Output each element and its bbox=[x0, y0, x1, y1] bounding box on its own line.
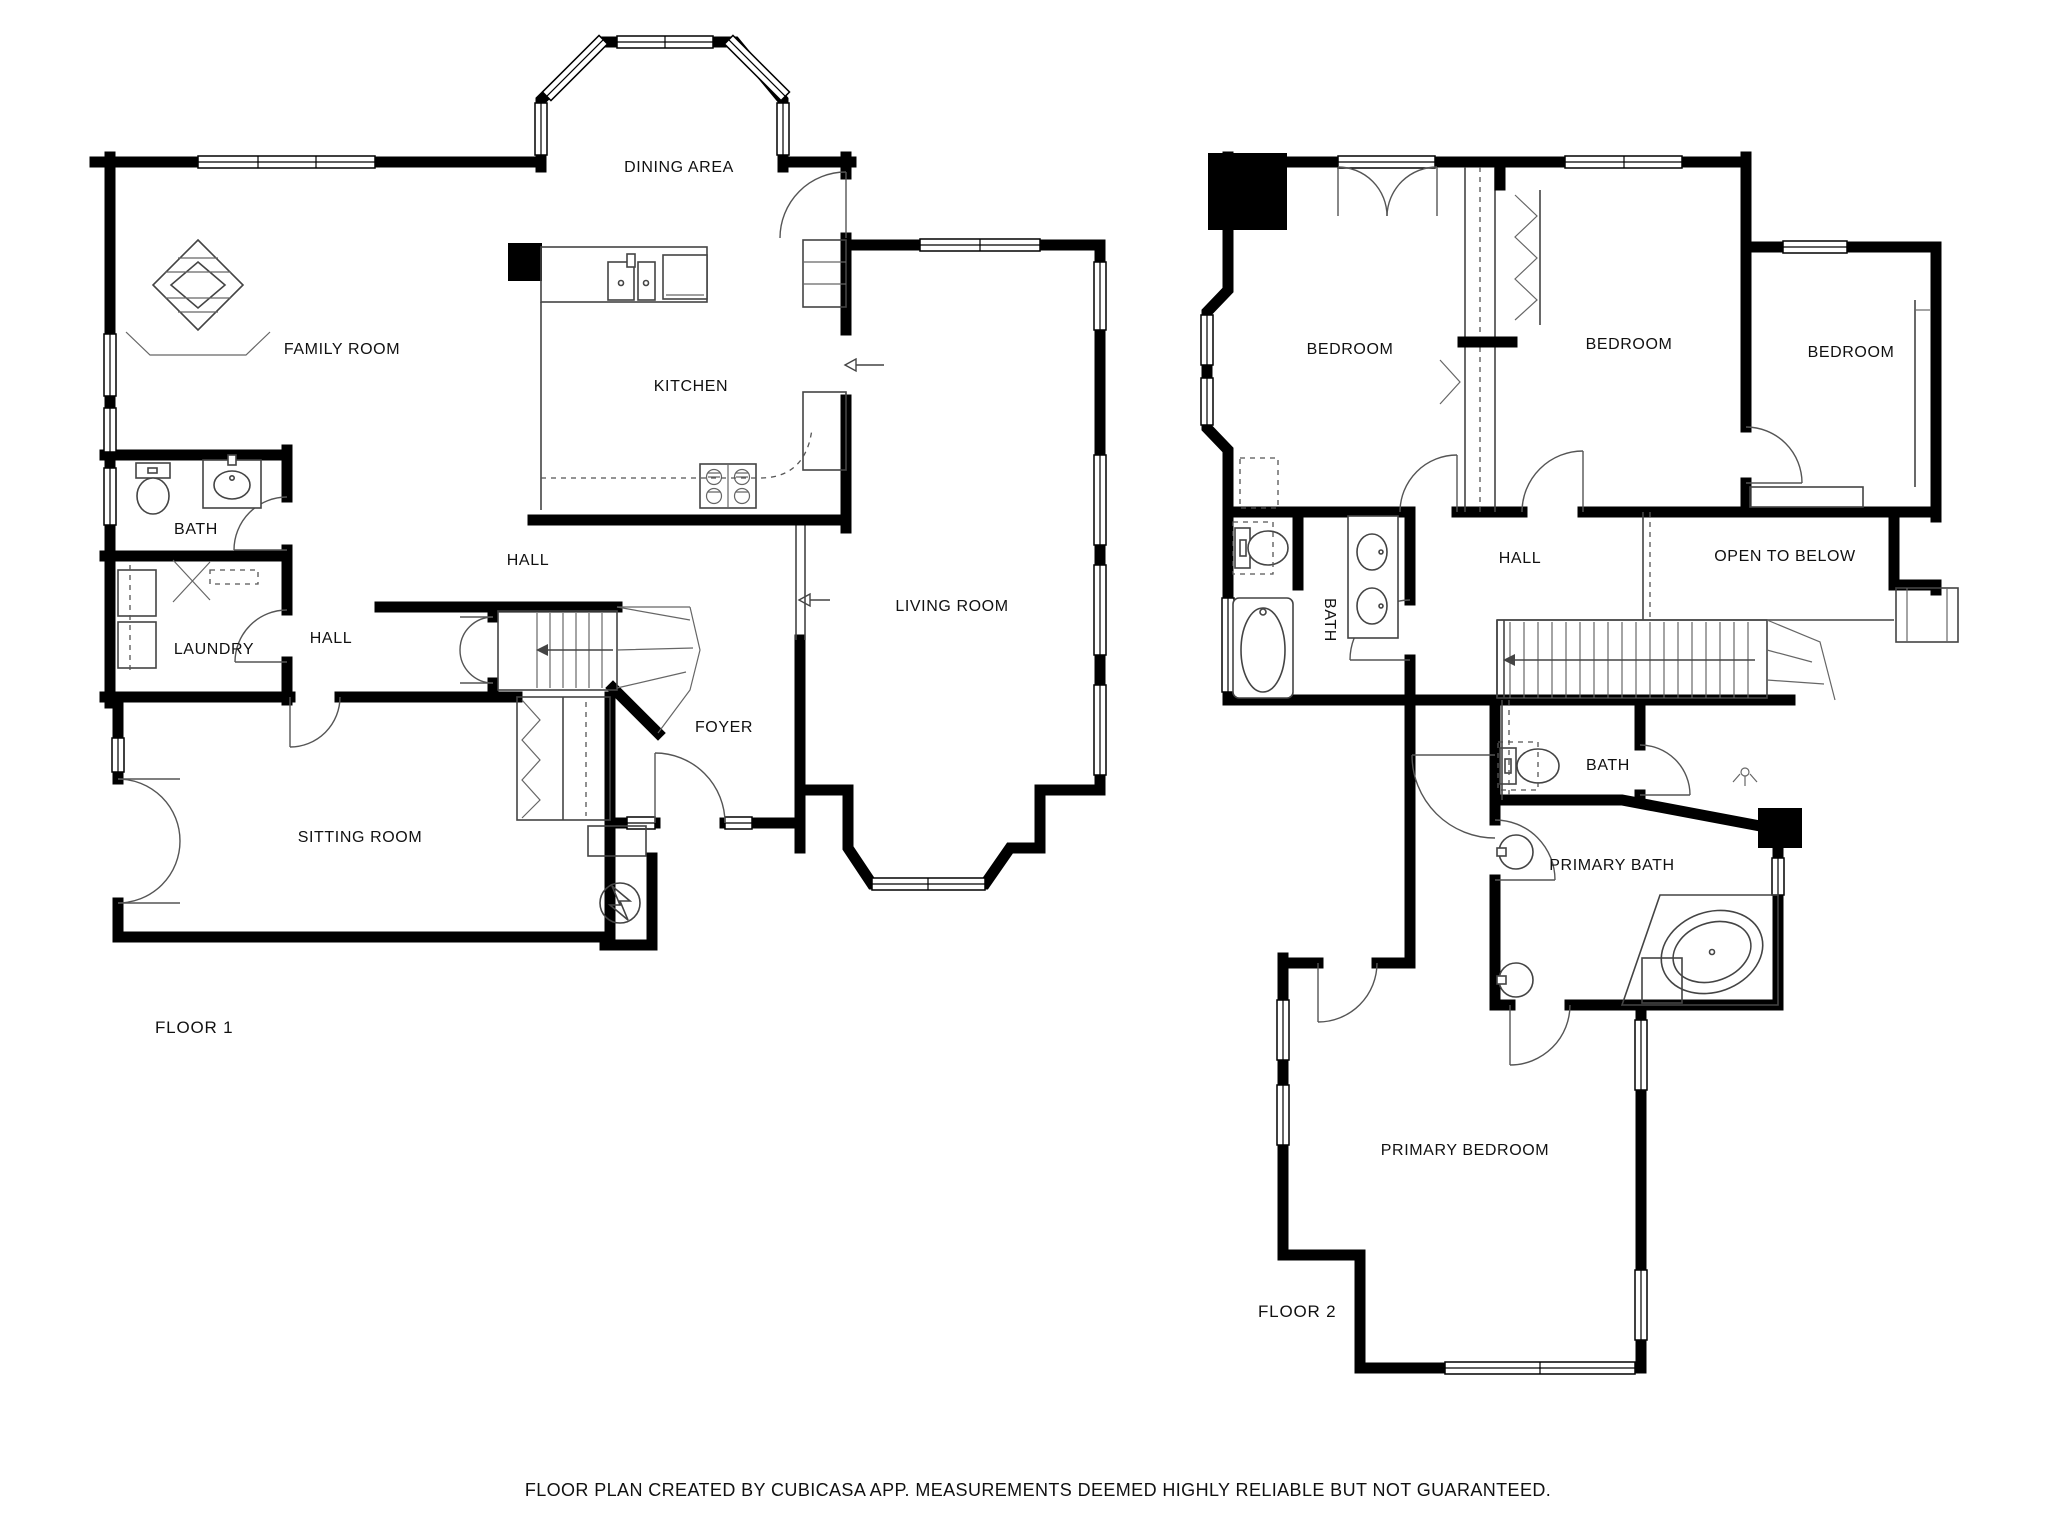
door-corridor bbox=[1412, 755, 1495, 838]
window-icon bbox=[1338, 156, 1435, 168]
window-icon bbox=[198, 156, 375, 168]
window-icon bbox=[1094, 262, 1106, 330]
room-label-hall-main: HALL bbox=[507, 552, 549, 569]
window-icon bbox=[1094, 685, 1106, 775]
kitchen-fixtures bbox=[508, 240, 884, 606]
closet-rod-zigzag bbox=[1440, 360, 1460, 404]
window-icon bbox=[920, 239, 1040, 251]
door-bedroom-to-bath bbox=[1510, 1005, 1570, 1065]
counter-icon bbox=[803, 392, 846, 470]
room-label-bedroom-1: BEDROOM bbox=[1307, 341, 1394, 358]
window-icon bbox=[724, 35, 789, 100]
floor-plan-page: DINING AREA FAMILY ROOM KITCHEN BATH HAL… bbox=[0, 0, 2048, 1536]
floor2-walls bbox=[1207, 153, 1958, 1368]
room-label-open-to-below: OPEN TO BELOW bbox=[1714, 548, 1856, 565]
door-sitting-room bbox=[290, 697, 340, 747]
room-label-hall-small: HALL bbox=[310, 630, 352, 647]
floor1-title: FLOOR 1 bbox=[155, 1018, 233, 1037]
floor1-plan: DINING AREA FAMILY ROOM KITCHEN BATH HAL… bbox=[95, 35, 1106, 1037]
room-label-kitchen: KITCHEN bbox=[654, 378, 728, 395]
window-icon bbox=[1635, 1020, 1647, 1090]
door-bifold-bedroom1 bbox=[1338, 167, 1437, 216]
window-icon bbox=[1094, 455, 1106, 545]
floor2-title: FLOOR 2 bbox=[1258, 1302, 1336, 1321]
floor2-plan: BEDROOM BEDROOM BEDROOM HALL OPEN TO BEL… bbox=[1201, 153, 1958, 1374]
door-patio-double bbox=[118, 779, 180, 903]
door-small-bath bbox=[1640, 745, 1690, 795]
toilet-icon bbox=[1235, 528, 1288, 568]
room-label-bedroom-3: BEDROOM bbox=[1808, 344, 1895, 361]
chimney2-icon bbox=[1758, 808, 1802, 848]
toilet-icon bbox=[136, 463, 170, 514]
room-label-bedroom-2: BEDROOM bbox=[1586, 336, 1673, 353]
window-icon bbox=[112, 738, 124, 772]
room-label-dining-area: DINING AREA bbox=[624, 159, 734, 176]
corner-tub-icon bbox=[1622, 895, 1778, 1007]
stairs-icon-2 bbox=[1497, 620, 1835, 700]
door-primary-bedroom bbox=[1318, 963, 1377, 1022]
window-icon bbox=[627, 817, 655, 829]
room-label-hall-2: HALL bbox=[1499, 550, 1541, 567]
window-icon bbox=[535, 103, 547, 155]
foyer-closets bbox=[517, 697, 646, 856]
bath2-small-fixtures bbox=[1498, 700, 1559, 800]
door-bedroom3 bbox=[1746, 427, 1802, 483]
window-icon bbox=[104, 334, 116, 396]
window-icon bbox=[1565, 156, 1682, 168]
window-icon bbox=[1445, 1362, 1635, 1374]
window-icon bbox=[1094, 565, 1106, 655]
window-icon bbox=[542, 35, 607, 100]
door-dining-exterior bbox=[780, 172, 846, 238]
window-icon bbox=[1201, 315, 1213, 365]
room-label-family-room: FAMILY ROOM bbox=[284, 341, 400, 358]
window-icon bbox=[1772, 858, 1784, 895]
shower-head-icon bbox=[1733, 768, 1757, 786]
stairs-icon bbox=[498, 607, 700, 733]
round-sink-icon bbox=[1497, 963, 1533, 997]
stove-icon bbox=[700, 464, 756, 508]
door-front-entry bbox=[655, 753, 725, 823]
kitchen-column-icon bbox=[508, 243, 542, 281]
fridge-icon bbox=[663, 255, 707, 299]
floor1-doors bbox=[118, 172, 846, 903]
window-icon bbox=[1783, 241, 1847, 253]
tub-icon bbox=[1233, 598, 1293, 698]
passthrough-arrow-icon bbox=[845, 359, 884, 371]
footer-disclaimer: FLOOR PLAN CREATED BY CUBICASA APP. MEAS… bbox=[525, 1480, 1551, 1500]
pantry-shelves bbox=[803, 240, 846, 307]
window-icon bbox=[777, 103, 789, 155]
kitchen-sink-icon bbox=[608, 254, 655, 300]
window-icon bbox=[872, 878, 985, 890]
balcony-railing bbox=[1896, 588, 1958, 642]
room-label-foyer: FOYER bbox=[695, 719, 753, 736]
room-label-primary-bath: PRIMARY BATH bbox=[1549, 857, 1674, 874]
floor-plan-drawing: DINING AREA FAMILY ROOM KITCHEN BATH HAL… bbox=[0, 0, 2048, 1536]
hall-arrow-icon bbox=[799, 594, 830, 606]
double-sink-icon bbox=[1348, 516, 1398, 638]
room-label-laundry: LAUNDRY bbox=[174, 641, 254, 658]
window-icon bbox=[1201, 378, 1213, 425]
fireplace-icon bbox=[126, 240, 270, 355]
door-double-hall bbox=[460, 617, 493, 683]
window-icon bbox=[1277, 1000, 1289, 1060]
room-label-bath-2-small: BATH bbox=[1586, 757, 1630, 774]
window-icon bbox=[104, 468, 116, 525]
window-icon bbox=[725, 817, 752, 829]
window-icon bbox=[1635, 1270, 1647, 1340]
sink-icon bbox=[203, 455, 261, 508]
room-label-living-room: LIVING ROOM bbox=[895, 598, 1008, 615]
door-bedroom2 bbox=[1522, 451, 1583, 512]
room-label-bath-2-left: BATH bbox=[1321, 598, 1338, 642]
window-icon bbox=[1277, 1085, 1289, 1145]
window-icon bbox=[617, 36, 713, 48]
room-label-primary-bedroom: PRIMARY BEDROOM bbox=[1381, 1142, 1549, 1159]
room-label-sitting-room: SITTING ROOM bbox=[298, 829, 423, 846]
window-icon bbox=[104, 408, 116, 452]
round-sink-icon bbox=[1497, 835, 1533, 869]
closet-rod-zigzag bbox=[1515, 195, 1537, 320]
room-label-bath-1: BATH bbox=[174, 521, 218, 538]
bath2-left-fixtures bbox=[1233, 516, 1398, 698]
door-bedroom1 bbox=[1400, 455, 1457, 512]
